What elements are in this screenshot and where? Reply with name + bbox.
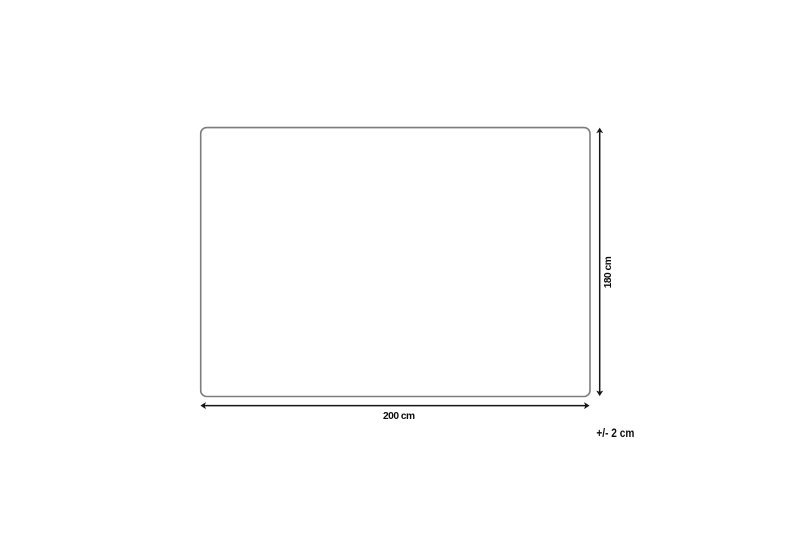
- svg-text:200 cm: 200 cm: [383, 411, 415, 422]
- svg-text:180 cm: 180 cm: [603, 256, 614, 288]
- svg-text:+/- 2 cm: +/- 2 cm: [596, 427, 634, 440]
